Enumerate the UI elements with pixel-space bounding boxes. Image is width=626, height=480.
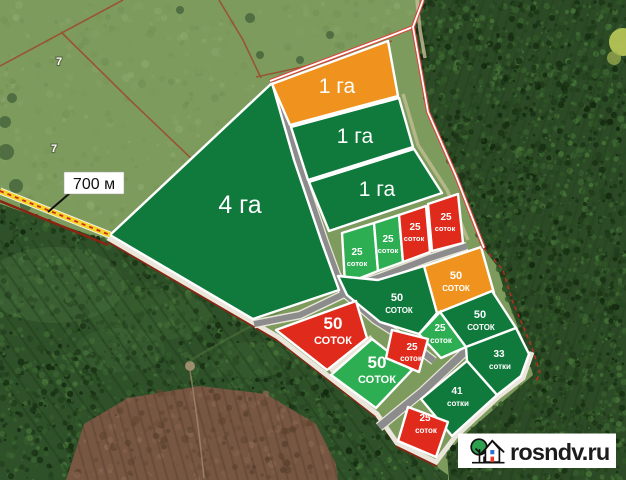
svg-text:соток: соток: [430, 336, 453, 345]
svg-text:25: 25: [434, 323, 446, 334]
svg-text:4 га: 4 га: [218, 191, 261, 219]
svg-text:соток: соток: [415, 426, 438, 435]
svg-text:7: 7: [51, 143, 57, 155]
svg-text:СОТОК: СОТОК: [314, 335, 352, 347]
svg-text:25: 25: [351, 247, 363, 258]
svg-text:1 га: 1 га: [359, 178, 396, 201]
svg-text:СОТОК: СОТОК: [467, 323, 495, 332]
svg-text:СОТОК: СОТОК: [385, 306, 413, 315]
svg-text:1 га: 1 га: [337, 125, 374, 148]
svg-text:33: 33: [493, 349, 505, 360]
svg-text:25: 25: [440, 212, 452, 223]
svg-text:25: 25: [406, 342, 418, 353]
svg-text:50: 50: [391, 292, 403, 304]
svg-text:50: 50: [450, 270, 462, 282]
svg-text:соток: соток: [404, 234, 425, 243]
svg-text:соток: соток: [378, 246, 399, 255]
svg-text:соток: соток: [400, 354, 423, 363]
svg-text:50: 50: [368, 353, 387, 372]
svg-text:700 м: 700 м: [73, 176, 115, 193]
svg-text:сотки: сотки: [447, 399, 469, 408]
svg-text:41: 41: [451, 386, 463, 397]
svg-text:соток: соток: [435, 224, 456, 233]
svg-text:СОТОК: СОТОК: [442, 284, 470, 293]
svg-text:25: 25: [419, 413, 431, 424]
svg-text:сотки: сотки: [489, 362, 511, 371]
svg-text:25: 25: [409, 222, 421, 233]
svg-text:25: 25: [382, 234, 394, 245]
svg-text:7: 7: [56, 56, 62, 68]
svg-text:соток: соток: [347, 259, 368, 268]
svg-text:СОТОК: СОТОК: [358, 374, 396, 386]
svg-text:50: 50: [474, 309, 486, 321]
svg-text:1 га: 1 га: [319, 75, 356, 98]
svg-text:50: 50: [324, 314, 343, 333]
svg-text:rosndv.ru: rosndv.ru: [510, 439, 609, 465]
